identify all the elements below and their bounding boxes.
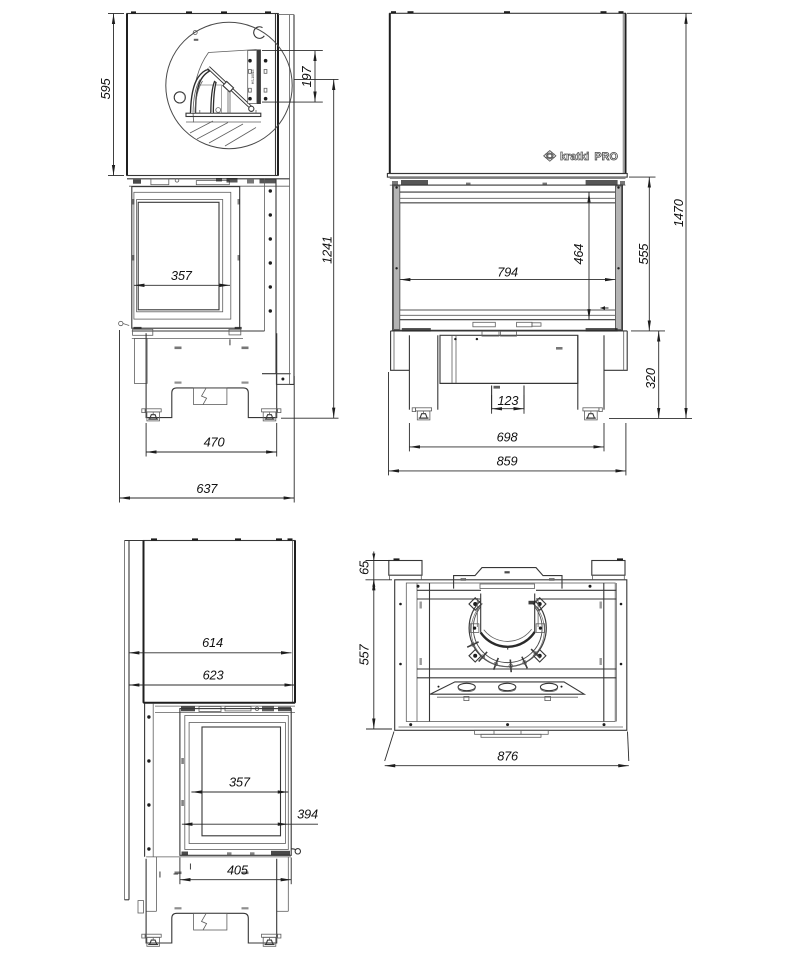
svg-text:65: 65: [357, 560, 372, 575]
svg-text:637: 637: [196, 481, 218, 496]
svg-text:197: 197: [299, 66, 314, 88]
svg-text:1470: 1470: [671, 198, 686, 227]
svg-text:PRO: PRO: [595, 151, 619, 163]
svg-text:123: 123: [498, 393, 519, 408]
svg-text:859: 859: [497, 454, 518, 469]
svg-text:394: 394: [297, 806, 318, 821]
svg-text:614: 614: [202, 635, 223, 650]
svg-text:405: 405: [227, 862, 249, 877]
svg-text:464: 464: [571, 244, 586, 265]
svg-text:698: 698: [497, 430, 519, 445]
svg-text:623: 623: [203, 668, 224, 683]
svg-text:555: 555: [636, 243, 651, 265]
svg-text:595: 595: [98, 78, 113, 100]
svg-text:470: 470: [204, 434, 226, 449]
svg-text:557: 557: [357, 644, 372, 666]
svg-text:876: 876: [497, 748, 519, 763]
svg-text:320: 320: [643, 367, 658, 389]
svg-text:357: 357: [229, 775, 251, 790]
svg-text:794: 794: [497, 264, 518, 279]
svg-text:357: 357: [171, 268, 193, 283]
svg-text:kratki: kratki: [560, 151, 589, 163]
svg-text:1241: 1241: [320, 236, 335, 264]
svg-text:HS-10015: HS-10015: [251, 70, 255, 85]
